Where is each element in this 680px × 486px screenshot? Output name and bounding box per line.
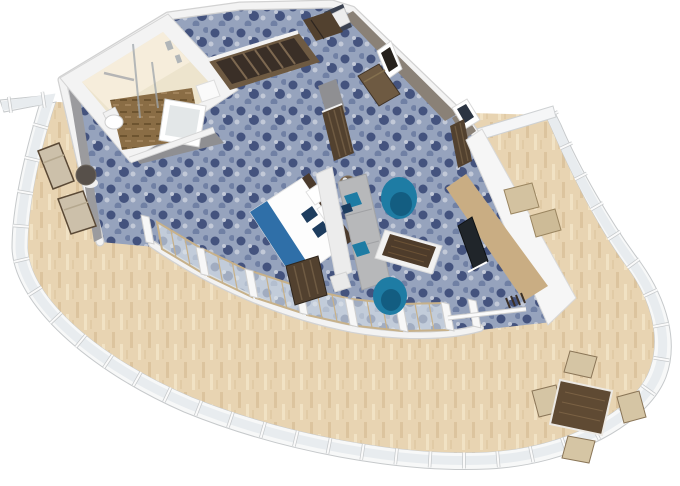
- round-table: [76, 165, 96, 185]
- railing-post: [497, 451, 498, 467]
- sliding-door: [401, 303, 448, 331]
- dining-chair-south: [562, 436, 595, 463]
- railing-post: [430, 451, 431, 467]
- floorplan-stage: [0, 0, 680, 486]
- toilet: [105, 115, 123, 129]
- armchair-1-seat: [390, 192, 412, 216]
- dining-table: [550, 380, 612, 435]
- railing-post: [13, 226, 29, 227]
- armchair-2-seat: [381, 289, 401, 311]
- floorplan-svg: [0, 0, 680, 486]
